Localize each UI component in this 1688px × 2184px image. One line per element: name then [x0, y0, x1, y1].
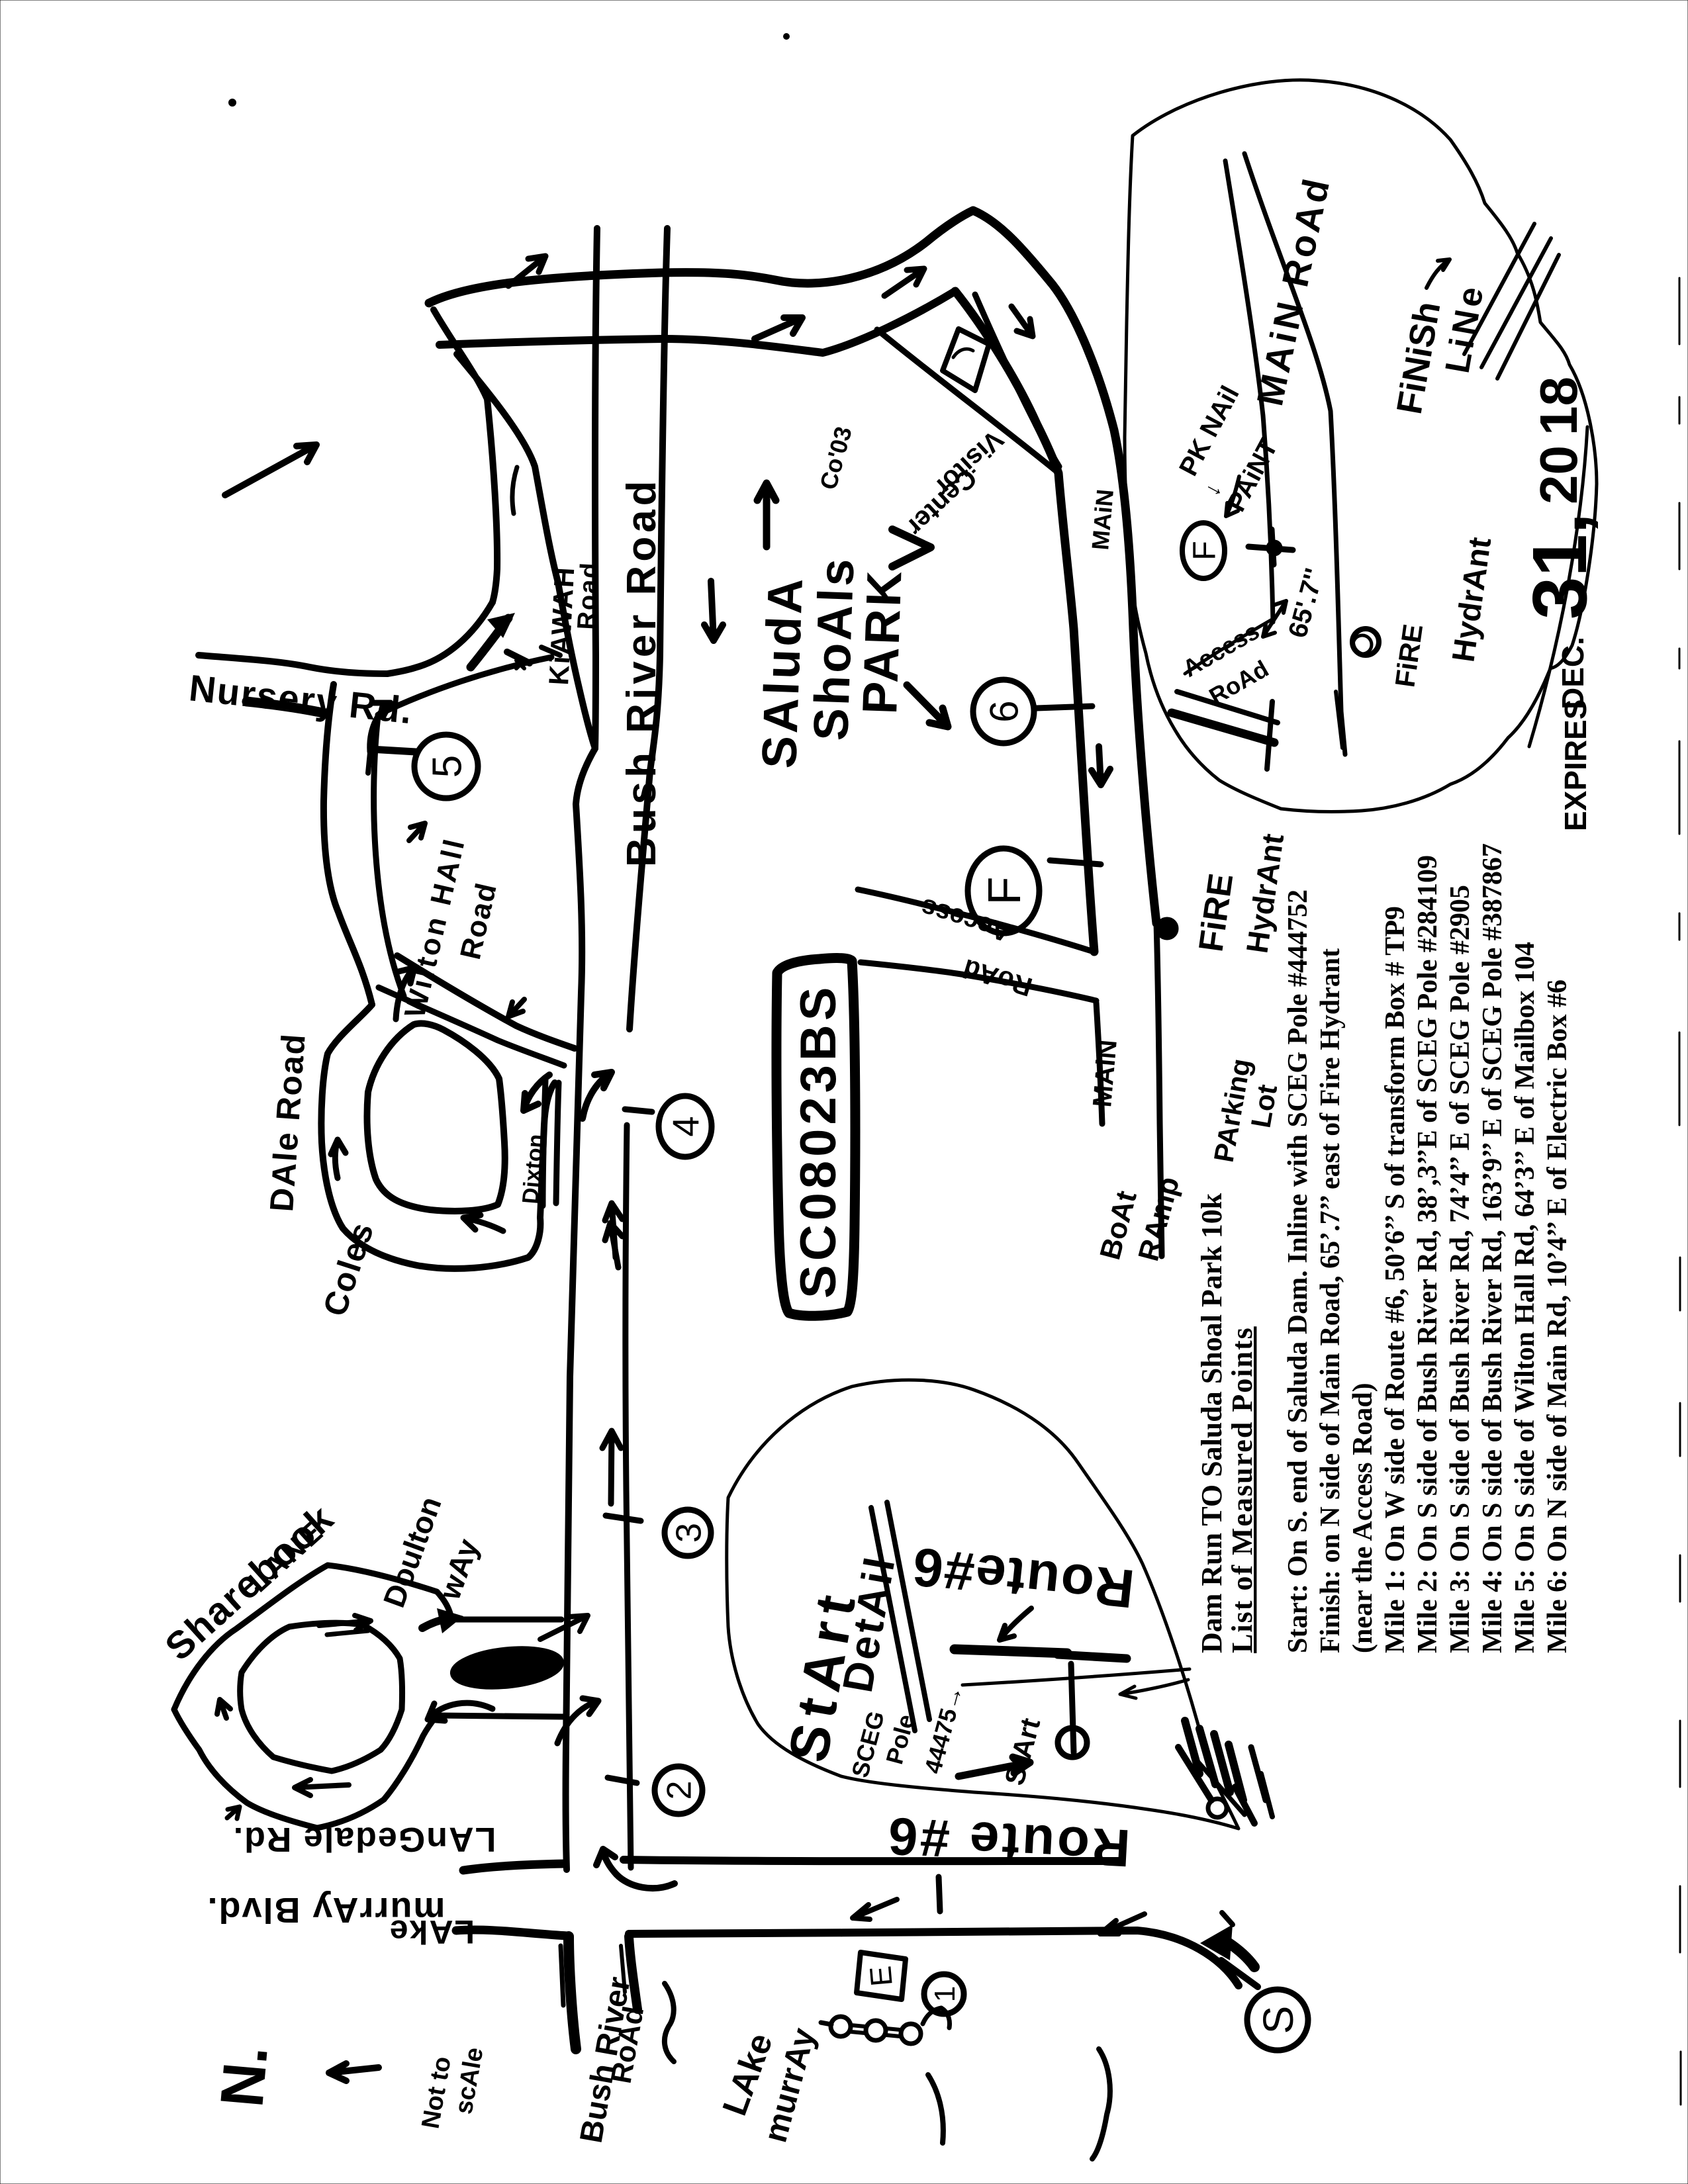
svg-text:wAy: wAy	[432, 1534, 485, 1604]
svg-text:Lot: Lot	[1245, 1082, 1284, 1130]
svg-text:List of Measured Points: List of Measured Points	[1226, 1326, 1258, 1653]
svg-text:FiNiSh: FiNiSh	[1389, 298, 1448, 417]
svg-text:18: 18	[1529, 377, 1588, 435]
svg-text:3: 3	[669, 1523, 708, 1543]
svg-text:EXPIRES: EXPIRES	[1558, 700, 1593, 831]
svg-text:Finish: on N side of Main Road: Finish: on N side of Main Road, 65’.7’’ …	[1315, 948, 1346, 1653]
svg-text:Dam Run TO Saluda Shoal Park 1: Dam Run TO Saluda Shoal Park 10k	[1196, 1193, 1228, 1653]
svg-text:Road: Road	[454, 879, 503, 962]
svg-text:2: 2	[661, 1781, 699, 1800]
svg-text:Road: Road	[573, 561, 604, 630]
svg-text:6: 6	[982, 700, 1027, 722]
svg-text:Mile 3: On S side of Bush Rive: Mile 3: On S side of Bush River Rd, 74’4…	[1445, 885, 1476, 1653]
svg-text:Mile 6: On N side of Main Rd,: Mile 6: On N side of Main Rd, 10’4’’ E o…	[1542, 979, 1573, 1653]
svg-text:scAle: scAle	[450, 2045, 489, 2116]
svg-text:RoAd: RoAd	[960, 953, 1036, 1001]
svg-text:PAiNT: PAiNT	[1221, 434, 1284, 516]
svg-text:Mile 1: On W side of Route #6,: Mile 1: On W side of Route #6, 50’6’’ S …	[1380, 906, 1411, 1653]
svg-text:Mile 4: On S side of Bush Rive: Mile 4: On S side of Bush River Rd, 163’…	[1477, 843, 1508, 1653]
svg-text:4: 4	[665, 1116, 706, 1136]
svg-text:PK NAil: PK NAil	[1174, 381, 1245, 480]
svg-text:SCEG: SCEG	[846, 1708, 890, 1780]
svg-text:LAnGedale Rd.: LAnGedale Rd.	[232, 1820, 496, 1858]
svg-text:MAiN: MAiN	[1086, 488, 1119, 551]
svg-text:LAke: LAke	[389, 1913, 475, 1950]
svg-text:20: 20	[1529, 445, 1588, 504]
svg-text:FiRE: FiRE	[1192, 871, 1241, 954]
svg-text:S: S	[1254, 2006, 1302, 2034]
svg-text:MAiN: MAiN	[1088, 1038, 1123, 1109]
svg-text:65'.7'': 65'.7''	[1283, 565, 1329, 641]
svg-text:↓: ↓	[1199, 478, 1227, 500]
svg-text:Route #6: Route #6	[884, 1806, 1132, 1878]
svg-text:RAmp: RAmp	[1132, 1173, 1186, 1265]
svg-text:1: 1	[929, 1986, 961, 2002]
svg-text:Not to: Not to	[417, 2054, 457, 2130]
svg-text:DAle Road: DAle Road	[263, 1032, 312, 1213]
svg-text:Co'03: Co'03	[814, 424, 857, 492]
svg-text:Route#6: Route#6	[909, 1535, 1137, 1619]
svg-text:Coles: Coles	[316, 1217, 381, 1320]
svg-text:31,: 31,	[1517, 513, 1603, 619]
svg-text:5: 5	[424, 755, 470, 778]
svg-text:PARK: PARK	[852, 568, 912, 715]
svg-text:F: F	[1187, 541, 1222, 560]
svg-text:N.: N.	[208, 2043, 281, 2110]
svg-text:Mile 5: On S side of Wilton Ha: Mile 5: On S side of Wilton Hall Rd, 64’…	[1510, 942, 1540, 1653]
svg-text:Start: On S. end of Saluda Dam: Start: On S. end of Saluda Dam. Inline w…	[1283, 889, 1313, 1653]
svg-text:E: E	[863, 1964, 898, 1987]
svg-text:SC08023BS: SC08023BS	[790, 983, 847, 1299]
svg-text:F: F	[978, 877, 1030, 905]
svg-text:Mile 2: On S side of Bush Rive: Mile 2: On S side of Bush River Rd, 38’,…	[1413, 855, 1443, 1653]
svg-text:(near the Access Road): (near the Access Road)	[1348, 1383, 1378, 1653]
svg-text:StArt: StArt	[998, 1715, 1046, 1788]
svg-text:Bush River Road: Bush River Road	[619, 477, 665, 867]
svg-text:HydrAnt: HydrAnt	[1446, 535, 1498, 664]
svg-text:FiRE: FiRE	[1389, 622, 1429, 689]
svg-text:DEC.: DEC.	[1556, 637, 1590, 709]
